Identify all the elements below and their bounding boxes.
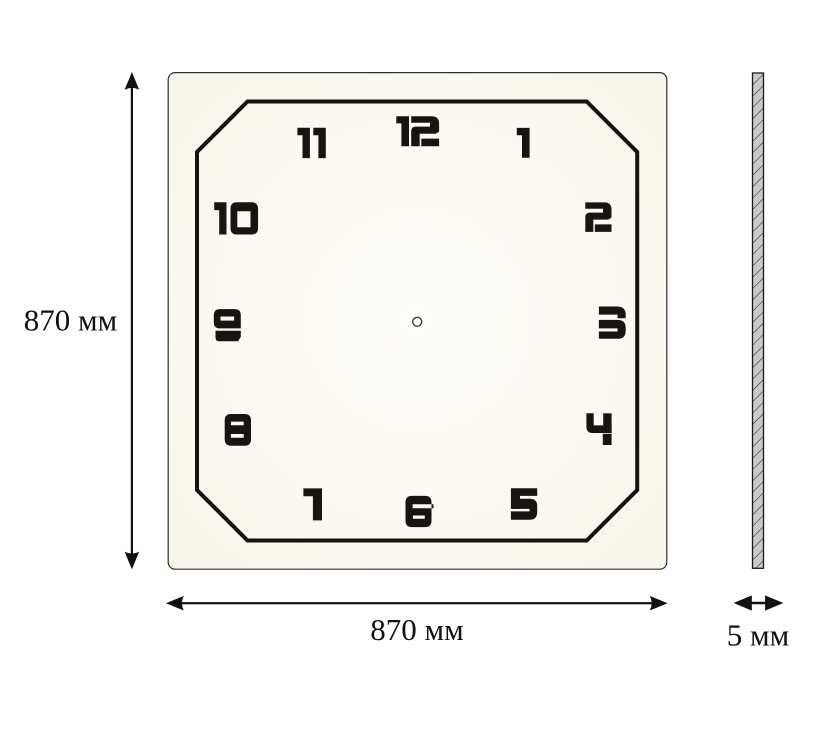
- svg-text:870 мм: 870 мм: [24, 303, 117, 338]
- svg-text:870 мм: 870 мм: [370, 612, 463, 647]
- svg-text:5 мм: 5 мм: [727, 617, 789, 652]
